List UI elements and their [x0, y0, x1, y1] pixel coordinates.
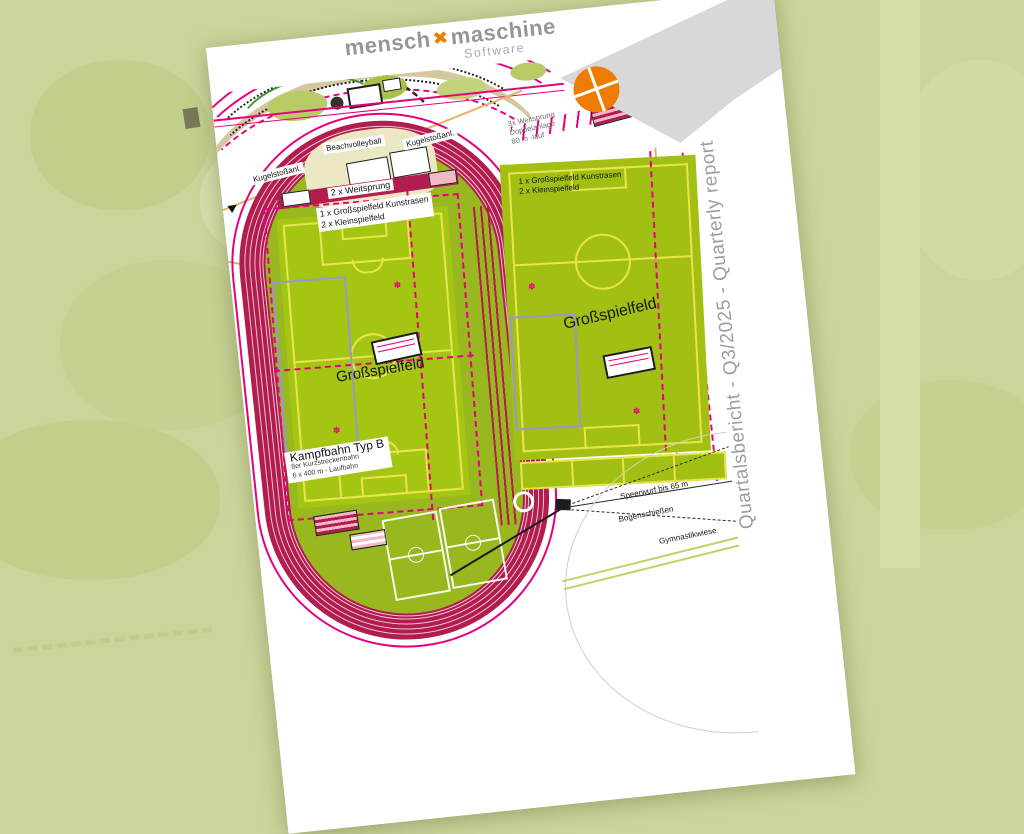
hydrant-symbol: ✽ — [393, 280, 401, 292]
hydrant-symbol: ✽ — [528, 281, 536, 292]
background-dashed-path — [13, 627, 212, 653]
background-tree-blob — [30, 60, 210, 210]
background-tree-blob — [0, 420, 220, 580]
orange-x-icon: ✖ — [431, 27, 450, 50]
background-tree-blob — [850, 380, 1024, 530]
background-building — [183, 107, 201, 129]
logo-word-mensch: mensch — [343, 27, 431, 62]
hydrant-symbol: ✽ — [633, 406, 641, 417]
site-plan-map: ✽ ✽ Großspielfeld ✽ ✽ 1 x Großspielfeld … — [211, 44, 764, 834]
hydrant-symbol: ✽ — [332, 425, 340, 437]
east-grossspielfeld: ✽ ✽ 1 x Großspielfeld Kunstrasen 2 x Kle… — [500, 155, 711, 461]
report-cover-page: mensch✖maschine Software — [206, 0, 855, 834]
goal-box — [584, 424, 641, 449]
background-path-strip — [880, 0, 920, 568]
